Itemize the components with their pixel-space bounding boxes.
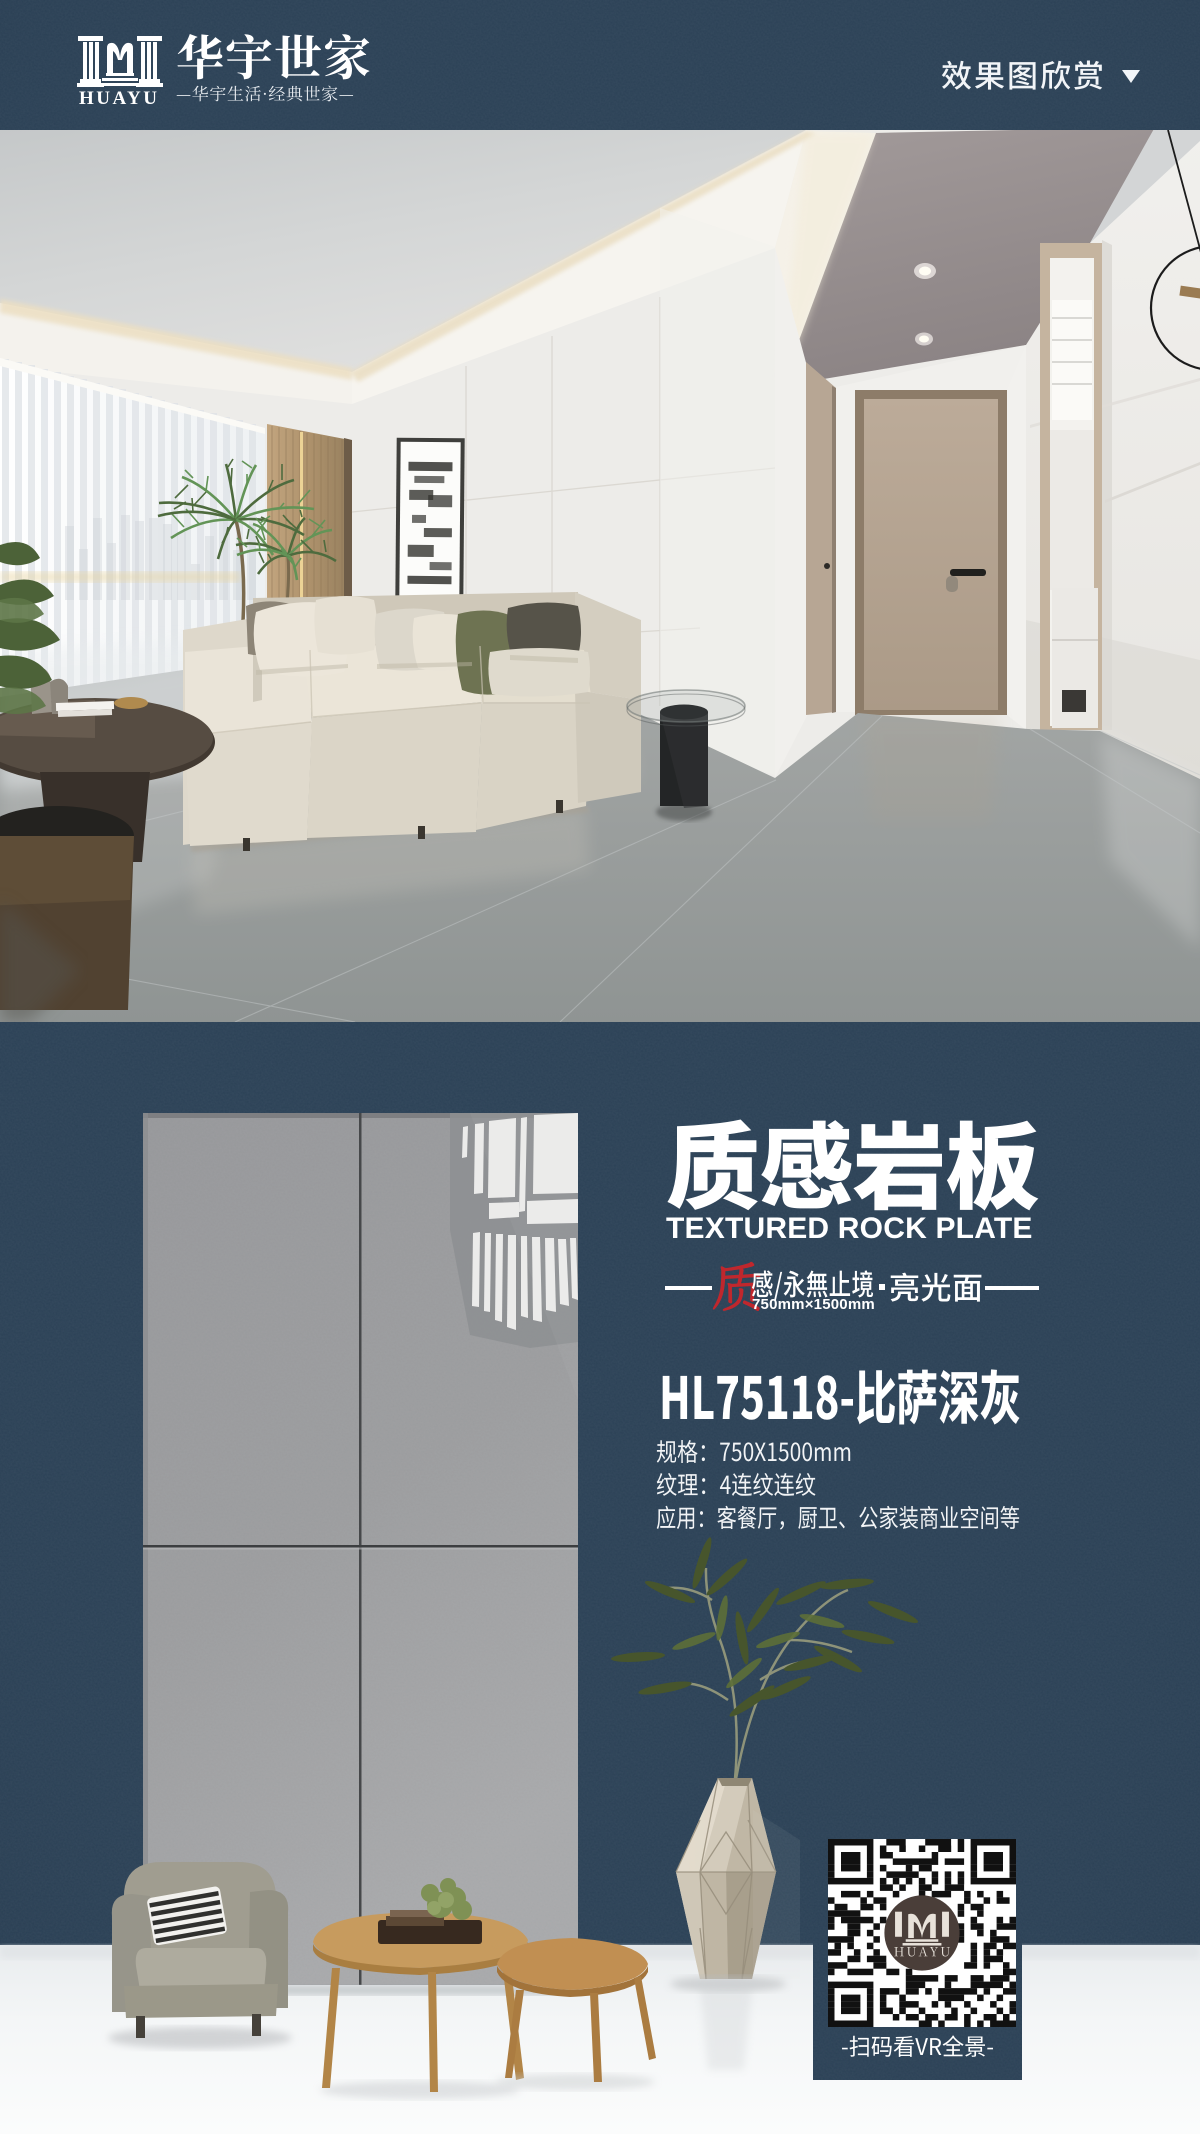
svg-text:HUAYU: HUAYU	[79, 88, 159, 109]
svg-text:TEXTURED ROCK PLATE: TEXTURED ROCK PLATE	[666, 1212, 1033, 1245]
svg-text:750mm×1500mm: 750mm×1500mm	[752, 1296, 875, 1313]
